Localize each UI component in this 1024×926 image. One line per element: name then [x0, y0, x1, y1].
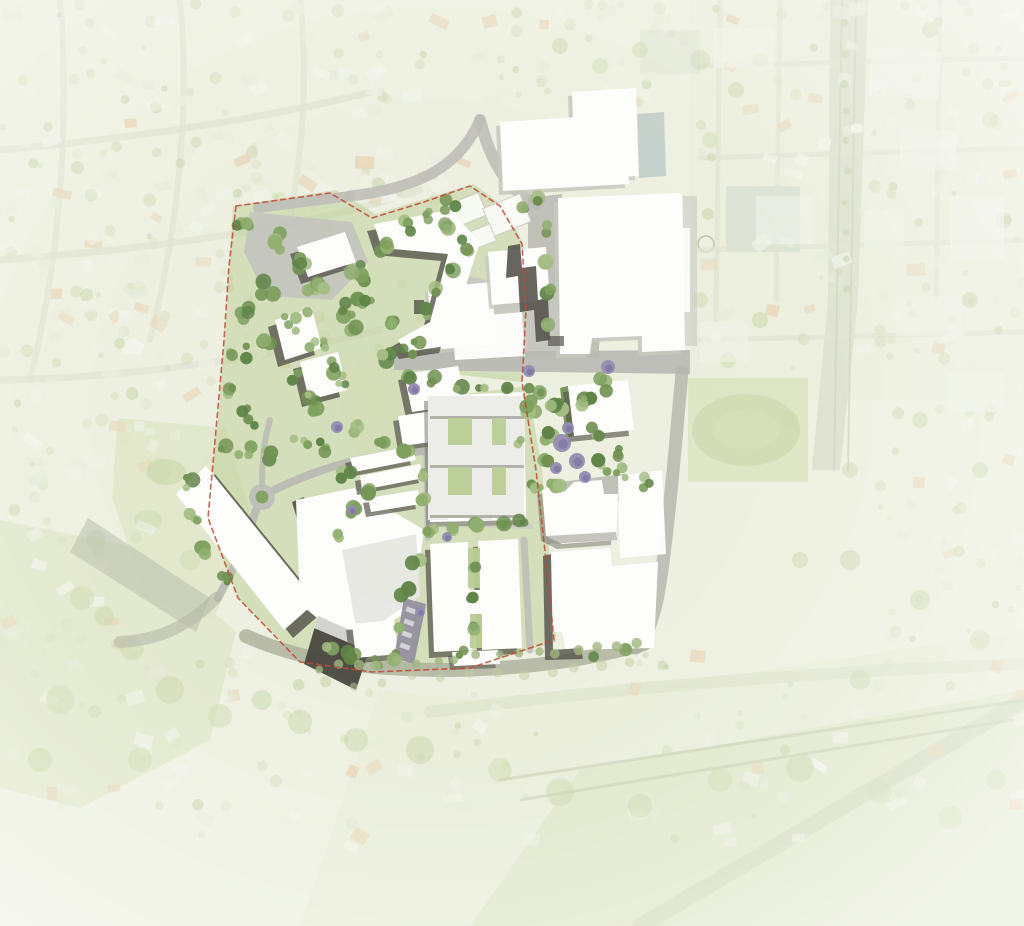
map-canvas [0, 0, 1024, 926]
edge-fade [0, 0, 1024, 926]
masterplan-aerial-view [0, 0, 1024, 926]
